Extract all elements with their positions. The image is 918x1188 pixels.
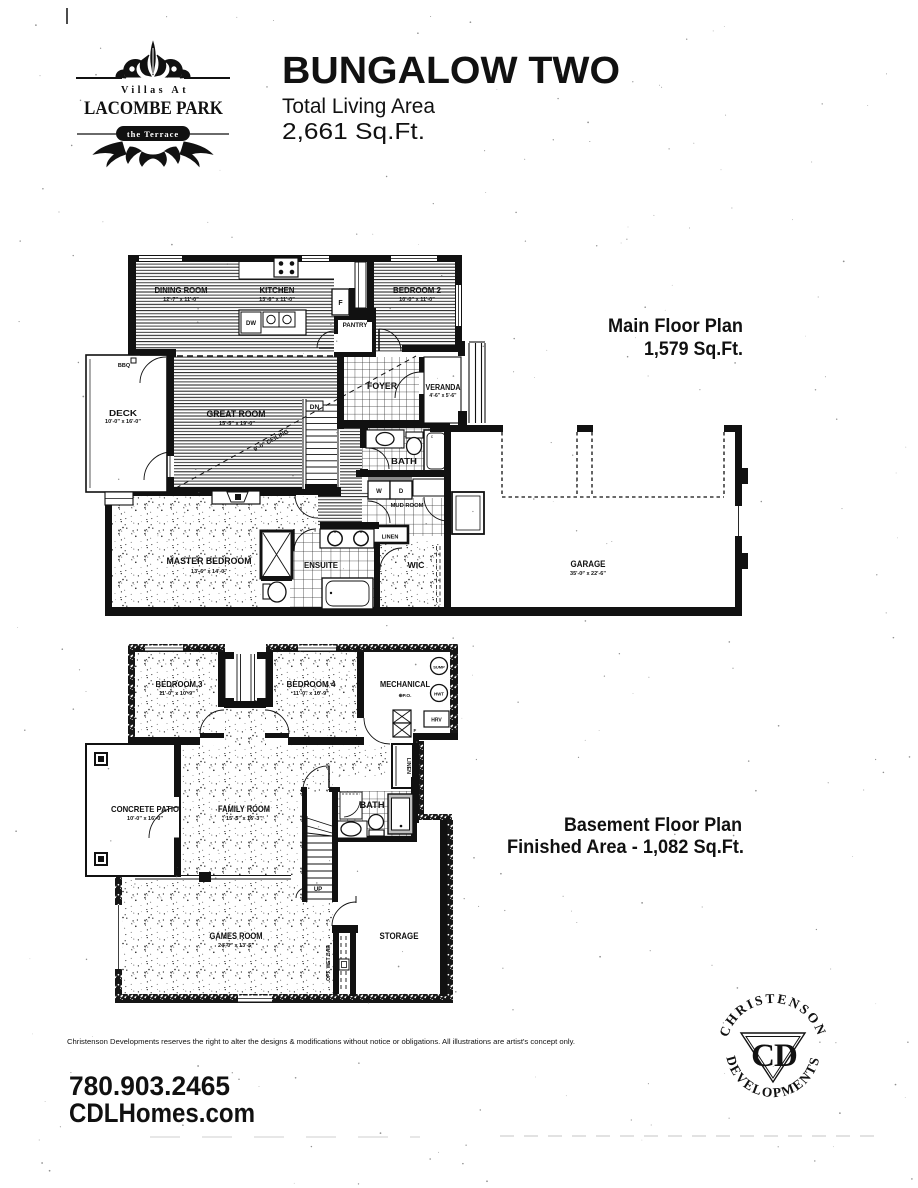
svg-text:W: W (376, 489, 382, 495)
svg-text:15'-5" x 19'-0": 15'-5" x 19'-0" (219, 421, 255, 427)
svg-text:DECK: DECK (109, 408, 138, 418)
svg-text:BBQ: BBQ (118, 363, 131, 369)
svg-text:CDLHomes.com: CDLHomes.com (69, 1098, 255, 1128)
svg-text:10'-0" x 16'-0": 10'-0" x 16'-0" (127, 816, 163, 822)
svg-text:11'-0" x 10'-9": 11'-0" x 10'-9" (159, 691, 195, 697)
svg-text:the Terrace: the Terrace (127, 129, 179, 139)
svg-text:LACOMBE PARK: LACOMBE PARK (84, 98, 223, 119)
svg-text:CONCRETE PATIO: CONCRETE PATIO (111, 804, 179, 814)
svg-text:FAMILY ROOM: FAMILY ROOM (218, 804, 270, 814)
svg-text:PANTRY: PANTRY (343, 322, 369, 329)
svg-text:1,579 Sq.Ft.: 1,579 Sq.Ft. (644, 338, 743, 360)
svg-text:ENSUITE: ENSUITE (304, 561, 339, 570)
svg-text:10'-0" x 11'-0": 10'-0" x 11'-0" (399, 297, 435, 303)
svg-text:11'-0" x 10'-9": 11'-0" x 10'-9" (293, 691, 329, 697)
svg-text:F: F (414, 728, 417, 733)
svg-text:FOYER: FOYER (367, 381, 398, 391)
svg-text:BEDROOM 3: BEDROOM 3 (156, 679, 203, 689)
svg-text:2,661 Sq.Ft.: 2,661 Sq.Ft. (282, 118, 425, 144)
svg-text:24'-0" x 13'-5": 24'-0" x 13'-5" (218, 943, 254, 949)
svg-text:Finished Area - 1,082 Sq.Ft.: Finished Area - 1,082 Sq.Ft. (507, 836, 744, 858)
svg-text:Basement Floor Plan: Basement Floor Plan (564, 814, 742, 836)
svg-text:UP: UP (314, 887, 322, 893)
svg-text:OPT. WET BAR: OPT. WET BAR (326, 945, 332, 981)
svg-text:HRV: HRV (431, 718, 442, 724)
svg-text:780.903.2465: 780.903.2465 (69, 1071, 230, 1101)
svg-text:4'-6" x 5'-6": 4'-6" x 5'-6" (429, 393, 457, 399)
svg-text:GARAGE: GARAGE (571, 559, 606, 569)
svg-text:13'-6" x 11'-0": 13'-6" x 11'-0" (259, 297, 295, 303)
svg-text:DINING ROOM: DINING ROOM (155, 285, 208, 295)
svg-text:DW: DW (246, 321, 256, 327)
svg-text:BEDROOM 2: BEDROOM 2 (393, 285, 441, 295)
svg-text:BUNGALOW TWO: BUNGALOW TWO (282, 50, 620, 92)
svg-text:MASTER BEDROOM: MASTER BEDROOM (167, 556, 252, 566)
svg-text:Villas At: Villas At (121, 85, 189, 96)
svg-text:D: D (399, 489, 404, 495)
svg-text:GREAT ROOM: GREAT ROOM (207, 409, 266, 419)
svg-text:Total Living Area: Total Living Area (282, 94, 435, 118)
svg-text:CD: CD (751, 1038, 797, 1074)
svg-text:LINEN: LINEN (405, 758, 411, 774)
svg-text:Main Floor Plan: Main Floor Plan (608, 315, 743, 337)
svg-text:BATH: BATH (391, 456, 417, 466)
svg-text:BEDROOM 4: BEDROOM 4 (287, 679, 336, 689)
svg-text:35'-0" x 22'-6": 35'-0" x 22'-6" (570, 571, 606, 577)
svg-text:13'-6" x 14'-0": 13'-6" x 14'-0" (191, 569, 227, 575)
svg-text:HWT: HWT (434, 692, 444, 697)
svg-text:STORAGE: STORAGE (380, 931, 419, 941)
svg-text:KITCHEN: KITCHEN (260, 285, 295, 295)
svg-text:VERANDA: VERANDA (426, 383, 461, 392)
svg-text:⊕P.O.: ⊕P.O. (399, 693, 412, 699)
svg-text:MUD ROOM: MUD ROOM (391, 503, 424, 509)
svg-text:15'-5" x 16'-3": 15'-5" x 16'-3" (226, 816, 262, 822)
svg-text:SUMP: SUMP (433, 665, 445, 670)
svg-text:12'-7" x 11'-0": 12'-7" x 11'-0" (163, 297, 199, 303)
svg-text:10'-0" x 16'-0": 10'-0" x 16'-0" (105, 419, 141, 425)
svg-text:Christenson Developments reser: Christenson Developments reserves the ri… (67, 1037, 575, 1046)
svg-text:BATH: BATH (360, 800, 385, 810)
svg-text:F: F (338, 300, 343, 307)
svg-text:GAMES ROOM: GAMES ROOM (210, 931, 263, 941)
svg-text:LINEN: LINEN (382, 535, 399, 541)
svg-text:MECHANICAL: MECHANICAL (380, 679, 430, 689)
svg-text:WIC: WIC (408, 560, 425, 570)
